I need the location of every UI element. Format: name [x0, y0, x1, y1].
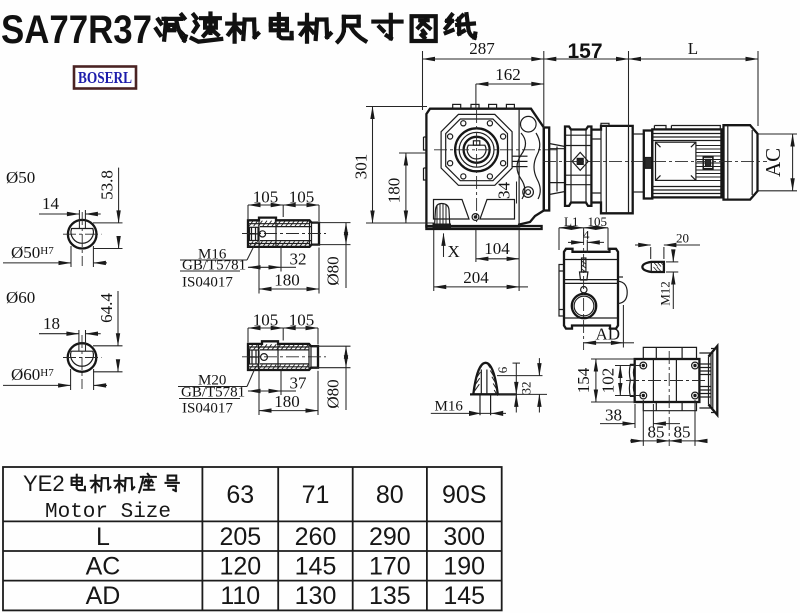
svg-text:BOSERL: BOSERL: [78, 68, 132, 87]
svg-text:M12: M12: [658, 281, 673, 306]
svg-text:32: 32: [290, 250, 307, 269]
svg-text:205: 205: [219, 523, 261, 551]
svg-text:162: 162: [495, 65, 521, 84]
svg-text:AD: AD: [86, 582, 121, 610]
svg-text:90S: 90S: [442, 481, 486, 509]
svg-text:102: 102: [599, 368, 618, 394]
svg-text:105: 105: [253, 188, 279, 207]
svg-text:135: 135: [369, 582, 411, 610]
svg-text:Motor Size: Motor Size: [45, 501, 171, 524]
svg-text:YE2: YE2: [23, 471, 65, 496]
svg-text:L: L: [96, 523, 110, 551]
svg-text:180: 180: [274, 392, 300, 411]
svg-text:145: 145: [295, 553, 337, 581]
svg-text:180: 180: [385, 178, 404, 204]
svg-text:260: 260: [295, 523, 337, 551]
svg-text:X: X: [448, 242, 460, 261]
svg-text:180: 180: [274, 271, 300, 290]
svg-text:AC: AC: [86, 553, 121, 581]
svg-text:190: 190: [443, 553, 485, 581]
svg-text:63: 63: [226, 481, 254, 509]
svg-text:170: 170: [369, 553, 411, 581]
svg-text:105: 105: [253, 311, 279, 330]
svg-text:IS04017: IS04017: [182, 401, 233, 417]
svg-text:AC: AC: [761, 148, 785, 177]
svg-text:37: 37: [290, 374, 308, 393]
svg-text:Ø50: Ø50: [6, 168, 35, 187]
svg-text:Ø50H7: Ø50H7: [11, 243, 54, 262]
svg-text:AD: AD: [596, 325, 621, 344]
svg-text:SA77R37: SA77R37: [1, 8, 152, 52]
svg-text:Ø60: Ø60: [6, 288, 35, 307]
svg-text:105: 105: [289, 188, 315, 207]
svg-text:IS04017: IS04017: [182, 275, 233, 291]
svg-text:Ø60H7: Ø60H7: [11, 365, 54, 384]
svg-text:85: 85: [648, 423, 665, 442]
svg-text:145: 145: [443, 582, 485, 610]
svg-text:Ø80: Ø80: [324, 379, 343, 408]
svg-text:53.8: 53.8: [98, 170, 117, 200]
svg-text:38: 38: [605, 406, 622, 425]
svg-text:4: 4: [583, 228, 590, 243]
svg-text:Ø80: Ø80: [324, 256, 343, 285]
svg-text:L1: L1: [564, 214, 578, 229]
svg-text:34: 34: [495, 182, 514, 200]
svg-text:14: 14: [42, 194, 60, 213]
svg-text:110: 110: [220, 582, 260, 610]
svg-text:L: L: [688, 39, 698, 58]
svg-text:154: 154: [574, 367, 593, 393]
svg-text:120: 120: [219, 553, 261, 581]
svg-text:105: 105: [289, 311, 315, 330]
svg-text:287: 287: [469, 39, 495, 58]
svg-text:64.4: 64.4: [97, 293, 116, 323]
svg-text:18: 18: [43, 314, 60, 333]
svg-text:105: 105: [588, 214, 608, 229]
svg-text:130: 130: [295, 582, 337, 610]
svg-text:6: 6: [495, 366, 510, 373]
svg-text:290: 290: [369, 523, 411, 551]
svg-text:157: 157: [567, 40, 602, 63]
svg-text:M16: M16: [435, 399, 464, 415]
svg-text:20: 20: [676, 231, 689, 246]
svg-text:85: 85: [674, 423, 691, 442]
svg-text:301: 301: [352, 154, 371, 180]
svg-text:32: 32: [519, 382, 534, 395]
svg-text:204: 204: [463, 268, 489, 287]
svg-text:104: 104: [484, 239, 510, 258]
svg-text:80: 80: [376, 481, 404, 509]
svg-text:71: 71: [302, 481, 330, 509]
svg-text:300: 300: [443, 523, 485, 551]
